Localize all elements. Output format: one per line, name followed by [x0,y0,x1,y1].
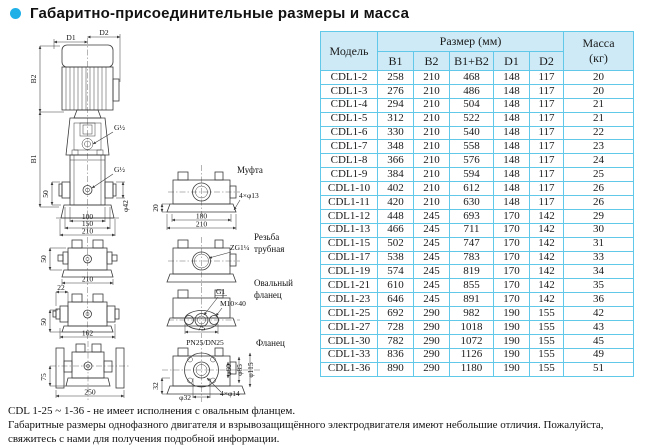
dim-label-d1: D1 [66,33,75,42]
value-cell: 117 [530,140,564,154]
value-cell: 610 [378,279,414,293]
dim-label-b2: B2 [29,74,38,83]
label-zg: ZG1¼ [230,243,250,252]
value-cell: 190 [494,362,530,376]
value-cell: 594 [450,168,494,182]
label-g-half-mid: G½ [114,165,125,174]
value-cell: 36 [564,293,634,307]
dim-label-75-oval: 75 [198,324,206,333]
value-cell: 612 [450,182,494,196]
model-cell: CDL1-27 [321,321,378,335]
table-row: CDL1-1244824569317014229 [321,209,634,223]
value-cell: 30 [564,223,634,237]
technical-drawing: D1 D2 B2 B1 G½ G½ 50 φ42 100 150 210 50 … [4,26,320,404]
footnotes: CDL 1-25 ~ 1-36 - не имеет исполнения с … [8,405,646,447]
value-cell: 34 [564,265,634,279]
table-row: CDL1-1550224574717014231 [321,237,634,251]
model-cell: CDL1-10 [321,182,378,196]
value-cell: 210 [414,182,450,196]
dim-label-20: 20 [151,204,160,212]
value-cell: 142 [530,279,564,293]
table-row: CDL1-938421059414811725 [321,168,634,182]
label-rezba-2: трубная [254,244,284,254]
footnote-line1: CDL 1-25 ~ 1-36 - не имеет исполнения с … [8,405,646,419]
value-cell: 836 [378,348,414,362]
value-cell: 148 [494,140,530,154]
value-cell: 148 [494,196,530,210]
header-mass-line1: Масса [564,36,633,51]
table-row: CDL1-2569229098219015542 [321,307,634,321]
dim-label-22: 22 [57,283,65,292]
value-cell: 210 [414,84,450,98]
value-cell: 420 [378,196,414,210]
value-cell: 21 [564,112,634,126]
value-cell: 1072 [450,334,494,348]
value-cell: 190 [494,321,530,335]
header-size-group: Размер (мм) [378,32,564,52]
dim-label-32: 32 [151,382,160,390]
value-cell: 210 [414,71,450,85]
value-cell: 117 [530,154,564,168]
label-oval-2: фланец [254,290,282,300]
dim-label-210-mufta: 210 [196,220,208,229]
value-cell: 711 [450,223,494,237]
model-cell: CDL1-13 [321,223,378,237]
model-cell: CDL1-8 [321,154,378,168]
value-cell: 1126 [450,348,494,362]
model-cell: CDL1-9 [321,168,378,182]
dim-label-210-v2: 210 [82,275,94,284]
header-b2: B2 [414,52,450,71]
model-cell: CDL1-11 [321,196,378,210]
value-cell: 117 [530,71,564,85]
header-b1: B1 [378,52,414,71]
value-cell: 245 [414,293,450,307]
value-cell: 210 [414,112,450,126]
table-row: CDL1-30782290107219015545 [321,334,634,348]
table-row: CDL1-633021054014811722 [321,126,634,140]
header-b1b2: B1+B2 [450,52,494,71]
value-cell: 42 [564,307,634,321]
value-cell: 117 [530,112,564,126]
label-flanec: Фланец [256,338,285,348]
page-title: Габаритно-присоединительные размеры и ма… [30,5,409,22]
value-cell: 117 [530,196,564,210]
value-cell: 117 [530,84,564,98]
value-cell: 142 [530,293,564,307]
table-row: CDL1-2364624589117014236 [321,293,634,307]
value-cell: 576 [450,154,494,168]
value-cell: 170 [494,223,530,237]
value-cell: 630 [450,196,494,210]
value-cell: 35 [564,279,634,293]
model-cell: CDL1-2 [321,71,378,85]
value-cell: 148 [494,182,530,196]
value-cell: 170 [494,293,530,307]
value-cell: 276 [378,84,414,98]
table-row: CDL1-1957424581917014234 [321,265,634,279]
value-cell: 49 [564,348,634,362]
header-mass: Масса (кг) [564,32,634,71]
value-cell: 148 [494,112,530,126]
label-oval-1: Овальный [254,278,293,288]
model-cell: CDL1-5 [321,112,378,126]
model-cell: CDL1-12 [321,209,378,223]
dim-label-d2: D2 [99,28,108,37]
dim-label-50-v3: 50 [39,318,48,326]
value-cell: 504 [450,98,494,112]
value-cell: 190 [494,334,530,348]
value-cell: 982 [450,307,494,321]
value-cell: 190 [494,307,530,321]
value-cell: 155 [530,307,564,321]
value-cell: 558 [450,140,494,154]
value-cell: 330 [378,126,414,140]
value-cell: 21 [564,98,634,112]
value-cell: 20 [564,84,634,98]
value-cell: 29 [564,209,634,223]
value-cell: 1180 [450,362,494,376]
value-cell: 574 [378,265,414,279]
table-row: CDL1-225821046814811720 [321,71,634,85]
value-cell: 819 [450,265,494,279]
value-cell: 692 [378,307,414,321]
model-cell: CDL1-19 [321,265,378,279]
value-cell: 170 [494,251,530,265]
value-cell: 290 [414,321,450,335]
value-cell: 155 [530,334,564,348]
value-cell: 25 [564,168,634,182]
value-cell: 26 [564,182,634,196]
value-cell: 290 [414,348,450,362]
model-cell: CDL1-21 [321,279,378,293]
table-row: CDL1-33836290112619015549 [321,348,634,362]
value-cell: 117 [530,182,564,196]
value-cell: 728 [378,321,414,335]
value-cell: 312 [378,112,414,126]
value-cell: 31 [564,237,634,251]
model-cell: CDL1-3 [321,84,378,98]
value-cell: 148 [494,126,530,140]
value-cell: 540 [450,126,494,140]
value-cell: 155 [530,348,564,362]
value-cell: 117 [530,168,564,182]
model-cell: CDL1-33 [321,348,378,362]
model-cell: CDL1-7 [321,140,378,154]
model-cell: CDL1-15 [321,237,378,251]
page-header: Габаритно-присоединительные размеры и ма… [10,5,409,22]
motor-fins [66,67,106,110]
value-cell: 245 [414,251,450,265]
dim-label-50-main: 50 [41,190,50,198]
value-cell: 210 [414,154,450,168]
label-g1: G1 [216,287,225,296]
value-cell: 142 [530,237,564,251]
value-cell: 155 [530,362,564,376]
value-cell: 210 [414,168,450,182]
value-cell: 245 [414,237,450,251]
header-model: Модель [321,32,378,71]
dim-label-250: 250 [84,388,96,397]
value-cell: 26 [564,196,634,210]
header-d1: D1 [494,52,530,71]
model-cell: CDL1-25 [321,307,378,321]
value-cell: 448 [378,209,414,223]
table-row: CDL1-531221052214811721 [321,112,634,126]
value-cell: 210 [414,140,450,154]
value-cell: 23 [564,140,634,154]
dim-label-75-v4: 75 [39,373,48,381]
table-row: CDL1-1040221061214811726 [321,182,634,196]
value-cell: 747 [450,237,494,251]
value-cell: 290 [414,334,450,348]
bullet-icon [10,8,21,19]
value-cell: 210 [414,126,450,140]
junction-box [113,79,119,101]
value-cell: 33 [564,251,634,265]
value-cell: 155 [530,321,564,335]
model-cell: CDL1-30 [321,334,378,348]
value-cell: 148 [494,154,530,168]
model-cell: CDL1-17 [321,251,378,265]
value-cell: 646 [378,293,414,307]
label-4xphi14: 4×φ14 [220,389,240,398]
label-4xphi13: 4×φ13 [239,191,259,200]
value-cell: 43 [564,321,634,335]
value-cell: 522 [450,112,494,126]
value-cell: 366 [378,154,414,168]
value-cell: 148 [494,71,530,85]
value-cell: 855 [450,279,494,293]
label-g-half-top: G½ [114,123,125,132]
table-row: CDL1-734821055814811723 [321,140,634,154]
model-cell: CDL1-4 [321,98,378,112]
value-cell: 348 [378,140,414,154]
dim-label-210-main: 210 [82,227,94,236]
value-cell: 148 [494,168,530,182]
value-cell: 258 [378,71,414,85]
value-cell: 170 [494,265,530,279]
model-cell: CDL1-6 [321,126,378,140]
label-pn25: PN25/DN25 [186,338,224,347]
model-cell: CDL1-36 [321,362,378,376]
value-cell: 148 [494,98,530,112]
value-cell: 468 [450,71,494,85]
label-mufta: Муфта [237,165,263,175]
value-cell: 117 [530,126,564,140]
table-row: CDL1-1753824578317014233 [321,251,634,265]
dim-label-phi60: φ60 [224,364,233,376]
model-cell: CDL1-23 [321,293,378,307]
table-row: CDL1-27728290101819015543 [321,321,634,335]
value-cell: 384 [378,168,414,182]
table-row: CDL1-1346624571117014230 [321,223,634,237]
value-cell: 142 [530,223,564,237]
value-cell: 486 [450,84,494,98]
dimensions-table: Модель Размер (мм) Масса (кг) B1 B2 B1+B… [320,31,634,377]
value-cell: 890 [378,362,414,376]
value-cell: 891 [450,293,494,307]
value-cell: 142 [530,265,564,279]
value-cell: 783 [450,251,494,265]
value-cell: 45 [564,334,634,348]
dim-label-phi42: φ42 [121,200,130,212]
table-row: CDL1-327621048614811720 [321,84,634,98]
value-cell: 245 [414,223,450,237]
value-cell: 148 [494,84,530,98]
value-cell: 117 [530,98,564,112]
value-cell: 502 [378,237,414,251]
table-header: Модель Размер (мм) Масса (кг) B1 B2 B1+B… [321,32,634,71]
dim-label-b1: B1 [29,154,38,163]
table-row: CDL1-2161024585517014235 [321,279,634,293]
value-cell: 290 [414,362,450,376]
value-cell: 142 [530,251,564,265]
label-m10x40: M10×40 [220,299,246,308]
value-cell: 20 [564,71,634,85]
value-cell: 782 [378,334,414,348]
value-cell: 170 [494,237,530,251]
dim-label-phi85: φ85 [235,364,244,376]
table-row: CDL1-429421050414811721 [321,98,634,112]
dim-label-162: 162 [82,329,94,338]
value-cell: 210 [414,196,450,210]
dim-label-phi115: φ115 [246,362,255,378]
value-cell: 290 [414,307,450,321]
value-cell: 170 [494,279,530,293]
value-cell: 210 [414,98,450,112]
value-cell: 170 [494,209,530,223]
value-cell: 22 [564,126,634,140]
value-cell: 190 [494,348,530,362]
value-cell: 466 [378,223,414,237]
value-cell: 51 [564,362,634,376]
dim-label-50-v2: 50 [39,255,48,263]
value-cell: 142 [530,209,564,223]
value-cell: 245 [414,279,450,293]
value-cell: 294 [378,98,414,112]
value-cell: 1018 [450,321,494,335]
value-cell: 245 [414,265,450,279]
dim-label-phi32: φ32 [179,393,191,402]
value-cell: 693 [450,209,494,223]
dimensions-table-container: Модель Размер (мм) Масса (кг) B1 B2 B1+B… [320,31,634,377]
value-cell: 245 [414,209,450,223]
value-cell: 538 [378,251,414,265]
table-row: CDL1-836621057614811724 [321,154,634,168]
value-cell: 402 [378,182,414,196]
table-body: CDL1-225821046814811720CDL1-327621048614… [321,71,634,377]
table-row: CDL1-36890290118019015551 [321,362,634,376]
value-cell: 24 [564,154,634,168]
header-mass-line2: (кг) [564,51,633,66]
label-rezba-1: Резьба [254,232,279,242]
header-d2: D2 [530,52,564,71]
table-row: CDL1-1142021063014811726 [321,196,634,210]
